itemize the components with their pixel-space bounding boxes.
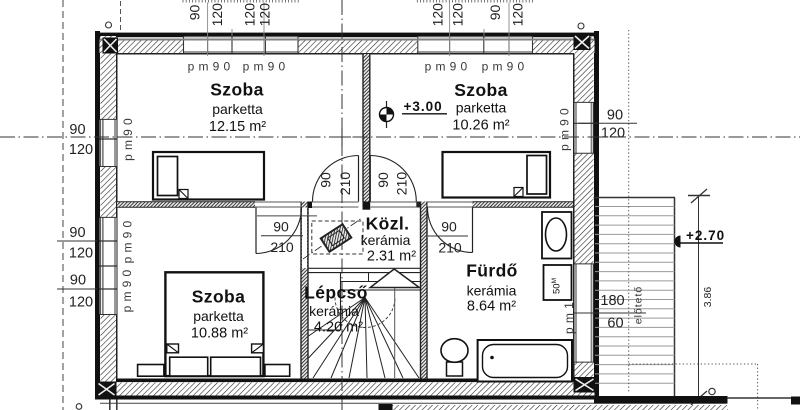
svg-text:10.26 m²: 10.26 m²	[452, 118, 509, 134]
svg-text:pm90: pm90	[188, 60, 235, 74]
svg-text:Lépcső: Lépcső	[304, 283, 368, 303]
svg-text:210: 210	[270, 239, 294, 255]
svg-text:120: 120	[209, 3, 225, 27]
svg-text:120: 120	[69, 142, 93, 158]
svg-text:pm90: pm90	[121, 217, 135, 264]
svg-text:Közl.: Közl.	[366, 214, 410, 234]
svg-text:120: 120	[450, 3, 466, 27]
svg-text:90: 90	[69, 225, 85, 241]
svg-text:Szoba: Szoba	[210, 80, 264, 100]
svg-text:120: 120	[242, 3, 258, 27]
svg-text:90: 90	[318, 172, 334, 188]
svg-text:kerámia: kerámia	[467, 283, 517, 299]
svg-text:pm90: pm90	[558, 104, 572, 151]
svg-text:kerámia: kerámia	[361, 232, 411, 248]
svg-text:210: 210	[337, 172, 353, 196]
svg-text:pm90: pm90	[243, 60, 290, 74]
svg-text:90: 90	[375, 172, 391, 188]
svg-text:Szoba: Szoba	[192, 287, 246, 307]
svg-text:90: 90	[441, 219, 457, 235]
svg-text:parketta: parketta	[212, 101, 263, 117]
svg-text:előtető: előtető	[633, 286, 645, 325]
svg-text:+3.00: +3.00	[404, 99, 443, 114]
svg-text:12.15 m²: 12.15 m²	[209, 119, 266, 135]
svg-text:90: 90	[70, 273, 86, 289]
svg-text:210: 210	[394, 172, 410, 196]
svg-text:60: 60	[607, 316, 623, 332]
svg-text:+2.70: +2.70	[686, 228, 725, 243]
svg-text:120: 120	[69, 295, 93, 311]
svg-text:180: 180	[600, 293, 624, 309]
svg-text:90: 90	[187, 5, 203, 21]
svg-text:pm90: pm90	[425, 60, 472, 74]
svg-text:4.20 m²: 4.20 m²	[314, 320, 363, 336]
svg-text:pm90: pm90	[482, 60, 529, 74]
svg-text:parketta: parketta	[456, 100, 507, 116]
svg-text:Fürdő: Fürdő	[466, 261, 518, 281]
svg-text:120: 120	[430, 3, 446, 27]
svg-text:90: 90	[607, 108, 623, 124]
svg-text:2.31 m²: 2.31 m²	[367, 249, 416, 265]
svg-text:90: 90	[69, 122, 85, 138]
svg-text:120: 120	[69, 246, 93, 262]
svg-text:pm90: pm90	[120, 266, 134, 313]
svg-text:90: 90	[273, 219, 289, 235]
svg-text:Szoba: Szoba	[454, 80, 508, 100]
svg-text:120: 120	[601, 126, 625, 142]
svg-text:90: 90	[487, 5, 503, 21]
svg-text:10.88 m²: 10.88 m²	[191, 326, 248, 342]
svg-text:120: 120	[510, 3, 526, 27]
svg-text:8.64 m²: 8.64 m²	[467, 299, 516, 315]
svg-text:pm90: pm90	[121, 114, 135, 161]
svg-text:pm1: pm1	[562, 298, 576, 334]
svg-text:210: 210	[438, 240, 462, 256]
svg-text:parketta: parketta	[193, 308, 244, 324]
svg-text:120: 120	[256, 3, 272, 27]
svg-text:3.86: 3.86	[702, 287, 714, 308]
svg-text:kerámia: kerámia	[309, 303, 359, 319]
